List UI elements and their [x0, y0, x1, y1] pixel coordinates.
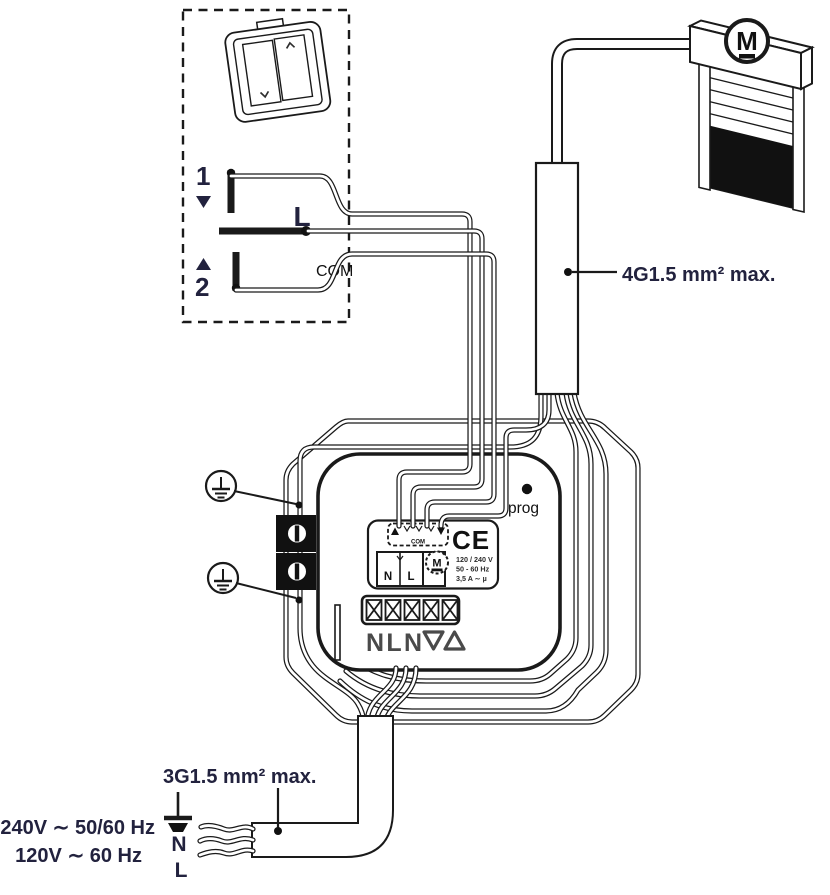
supply-n-label: N: [171, 833, 186, 856]
wiring-diagram: prog CE 120 / 240 V 50 - 60 Hz 3,5 A ∼ µ…: [0, 0, 830, 895]
terminal-1-label: 1: [196, 161, 210, 191]
module-motor-symbol: M: [426, 552, 448, 574]
module-n-label: N: [384, 571, 392, 583]
motor-cable-label: 4G1.5 mm² max.: [622, 264, 775, 286]
supply-conductors: [200, 826, 253, 855]
module-l-label: L: [407, 571, 414, 583]
prog-label: prog: [508, 500, 539, 517]
supply-labels: 240V ∼ 50/60 Hz 120V ∼ 60 Hz N L: [0, 792, 192, 882]
ce-mark: CE: [452, 525, 490, 555]
motor-cable-run: [557, 44, 695, 168]
connector-com-label: COM: [411, 540, 425, 546]
shutter-rail-left: [699, 61, 710, 190]
wall-switch: [223, 14, 332, 123]
voltage-120: 120V ∼ 60 Hz: [15, 845, 142, 867]
earth-clamp-blocks: [276, 515, 316, 590]
shutter-motor-symbol: M: [726, 20, 768, 62]
motor-cable-sheath: [536, 163, 578, 394]
svg-text:L: L: [386, 629, 401, 657]
terminal-2-up-icon: [196, 258, 211, 270]
supply-earth-icon: [164, 792, 192, 832]
terminal-1-down-icon: [196, 196, 211, 208]
rating-frequency: 50 - 60 Hz: [456, 565, 490, 574]
rating-voltage: 120 / 240 V: [456, 555, 493, 564]
terminal-2-label: 2: [195, 272, 209, 302]
module-antenna-tick: [335, 605, 340, 660]
terminal-strip: [362, 596, 459, 624]
voltage-240: 240V ∼ 50/60 Hz: [0, 817, 155, 839]
svg-text:N: N: [366, 629, 384, 657]
motor-cable-callout: 4G1.5 mm² max.: [564, 264, 775, 286]
supply-l-label: L: [175, 859, 188, 882]
svg-text:M: M: [736, 26, 758, 56]
nl-terminal-box: N L: [377, 552, 423, 586]
motor-cable-run: [557, 44, 695, 168]
prog-button-dot: [522, 484, 532, 494]
shutter-rail-right: [793, 85, 804, 213]
svg-text:M: M: [432, 558, 441, 570]
svg-text:N: N: [404, 629, 422, 657]
rating-current: 3,5 A ∼ µ: [456, 574, 487, 583]
roller-shutter: M: [690, 20, 812, 212]
module-rating-plate: CE 120 / 240 V 50 - 60 Hz 3,5 A ∼ µ COM …: [368, 521, 498, 589]
power-cable-label: 3G1.5 mm² max.: [163, 766, 316, 788]
